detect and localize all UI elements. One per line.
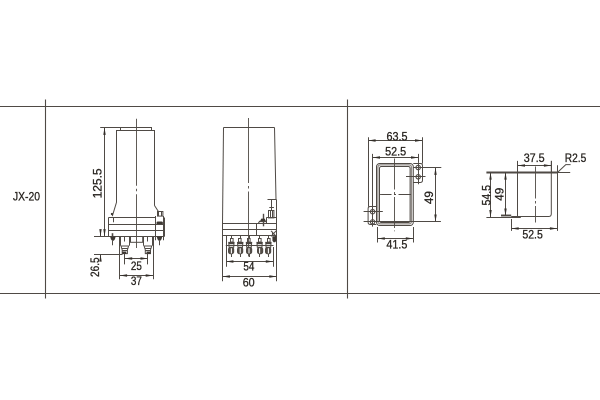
svg-text:37: 37 bbox=[131, 274, 142, 288]
svg-text:54: 54 bbox=[243, 259, 254, 273]
svg-text:25: 25 bbox=[131, 259, 142, 273]
svg-text:52.5: 52.5 bbox=[385, 145, 406, 159]
svg-text:41.5: 41.5 bbox=[386, 237, 407, 251]
svg-text:26.5: 26.5 bbox=[88, 257, 102, 277]
svg-text:60: 60 bbox=[243, 275, 255, 289]
svg-text:37.5: 37.5 bbox=[524, 151, 545, 165]
svg-text:52.5: 52.5 bbox=[522, 228, 543, 242]
svg-text:54.5: 54.5 bbox=[479, 185, 493, 206]
svg-text:49: 49 bbox=[422, 191, 436, 204]
svg-text:125.5: 125.5 bbox=[91, 168, 105, 198]
svg-text:R2.5: R2.5 bbox=[565, 151, 587, 165]
svg-text:63.5: 63.5 bbox=[387, 130, 408, 144]
svg-text:JX-20: JX-20 bbox=[13, 190, 40, 204]
svg-text:49: 49 bbox=[492, 187, 506, 200]
